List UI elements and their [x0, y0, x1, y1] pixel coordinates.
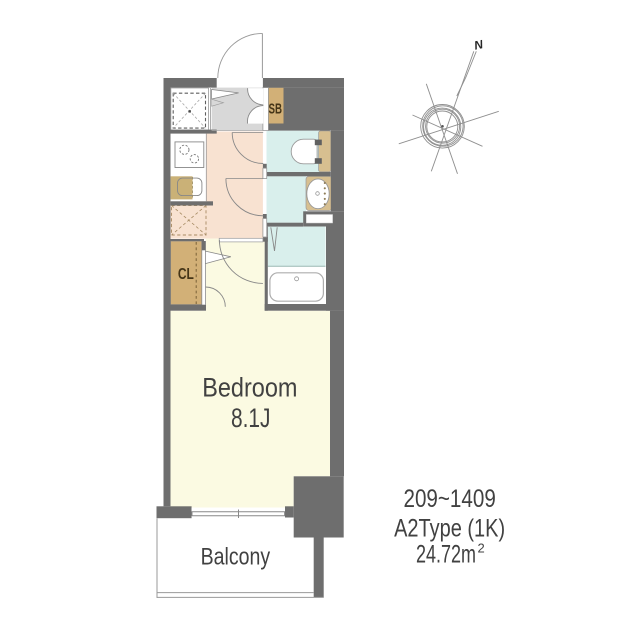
- svg-text:2: 2: [478, 541, 485, 556]
- svg-text:A2Type (1K): A2Type (1K): [394, 515, 505, 543]
- svg-text:209~1409: 209~1409: [404, 485, 496, 513]
- svg-text:Bedroom: Bedroom: [202, 373, 297, 403]
- svg-text:CL: CL: [178, 266, 194, 283]
- svg-text:8.1J: 8.1J: [231, 403, 271, 433]
- svg-text:N: N: [473, 37, 485, 53]
- svg-text:24.72m: 24.72m: [416, 541, 476, 569]
- svg-text:Balcony: Balcony: [201, 544, 271, 571]
- svg-text:SB: SB: [269, 101, 283, 118]
